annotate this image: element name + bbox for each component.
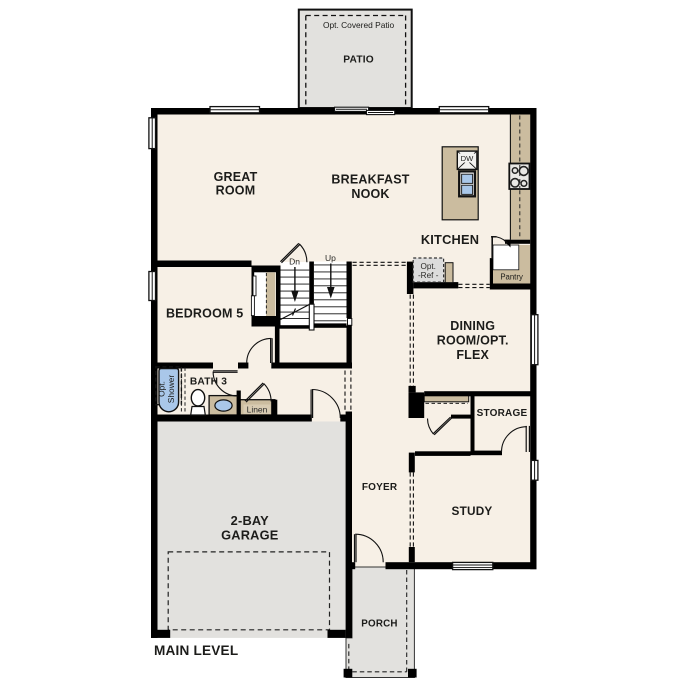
svg-text:NOOK: NOOK xyxy=(351,187,389,201)
svg-text:KITCHEN: KITCHEN xyxy=(421,232,479,247)
svg-text:GARAGE: GARAGE xyxy=(221,527,279,542)
svg-text:BEDROOM 5: BEDROOM 5 xyxy=(166,306,244,320)
svg-text:Dn: Dn xyxy=(289,257,300,267)
svg-text:MAIN LEVEL: MAIN LEVEL xyxy=(154,643,238,658)
svg-text:ROOM: ROOM xyxy=(216,183,256,197)
svg-text:Up: Up xyxy=(325,253,336,263)
svg-text:2-BAY: 2-BAY xyxy=(231,513,269,528)
svg-text:STUDY: STUDY xyxy=(452,504,493,518)
svg-text:Opt. Covered Patio: Opt. Covered Patio xyxy=(323,20,395,30)
svg-text:FLEX: FLEX xyxy=(456,348,489,362)
svg-text:Pantry: Pantry xyxy=(500,272,523,281)
svg-text:-Ref -: -Ref - xyxy=(418,271,439,280)
svg-text:PORCH: PORCH xyxy=(361,619,397,630)
svg-text:Shower: Shower xyxy=(166,375,176,404)
svg-text:PATIO: PATIO xyxy=(343,55,374,66)
svg-text:ROOM/OPT.: ROOM/OPT. xyxy=(437,334,509,348)
svg-text:STORAGE: STORAGE xyxy=(477,408,528,419)
svg-text:BATH 3: BATH 3 xyxy=(190,376,227,387)
svg-text:DW: DW xyxy=(461,154,474,163)
svg-text:FOYER: FOYER xyxy=(362,482,398,493)
svg-text:GREAT: GREAT xyxy=(214,170,258,184)
svg-text:Opt.: Opt. xyxy=(420,262,435,271)
svg-text:DINING: DINING xyxy=(450,319,495,333)
svg-text:BREAKFAST: BREAKFAST xyxy=(331,173,409,187)
svg-text:Linen: Linen xyxy=(247,405,268,415)
